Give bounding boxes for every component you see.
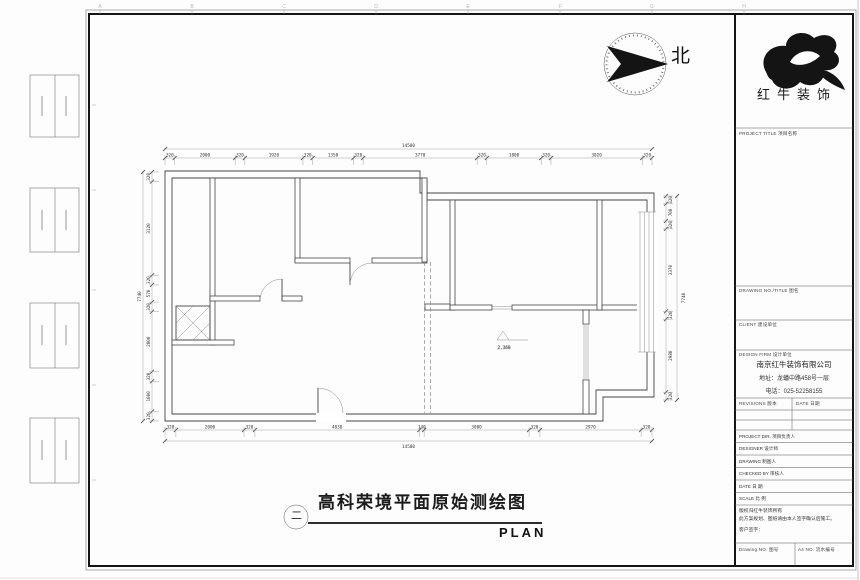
plan-subtitle: PLAN (499, 526, 546, 540)
footer-serial-no: A4 NO. 流水编号 (798, 547, 835, 552)
revisions-label: REVISIONS 版本 (739, 401, 777, 406)
row-scale: SCALE 比 例 (739, 496, 766, 501)
level-value: 2.360 (498, 345, 511, 351)
dim-label: 3770 (415, 153, 426, 159)
dim-label: 2000 (200, 153, 211, 159)
level-marker: 2.360 (497, 331, 528, 351)
dim-label: 320 (166, 153, 174, 159)
dim-label: 320 (146, 412, 152, 420)
logo-text: 红牛装饰 (737, 88, 857, 102)
revisions-date-label: DATE 日期 (796, 401, 820, 406)
dim-label: 320 (531, 425, 539, 431)
row-checked-by: CHECKED BY 审核人 (739, 471, 784, 476)
company-phone: 电话：025-52258155 (735, 389, 853, 396)
row-date: DATE 日 期 (739, 484, 763, 489)
dim-label: 320 (354, 153, 362, 159)
dim-chain-top: 3202000320192032013503203770320180032030… (163, 143, 654, 165)
door-arcs (260, 263, 512, 422)
dim-label: 2000 (205, 425, 216, 431)
dim-label: 320 (246, 425, 254, 431)
company-address: 地址：龙蟠中路458号一层 (735, 376, 853, 383)
drawing-sheet: .thin{stroke:#777;stroke-width:.6;fill:n… (0, 0, 860, 580)
dim-label: 320 (643, 425, 651, 431)
field-client: CLIENT 建设单位 (739, 322, 777, 327)
binding-marks (30, 75, 79, 483)
dim-label: 1800 (509, 153, 520, 159)
dim-label: 320 (146, 303, 152, 311)
dim-label: 320 (236, 153, 244, 159)
company-name: 南京红牛装饰有限公司 (735, 361, 853, 369)
dim-label: 320 (668, 221, 674, 229)
dim-label: 1920 (269, 153, 280, 159)
dim-label: 2970 (585, 425, 596, 431)
dim-label: 700 (668, 208, 674, 216)
note-line-3: 客户签字： (739, 528, 763, 533)
dim-chain-bottom: 320200032048301403080320297032014500 (163, 425, 654, 451)
grid-letter: C (282, 4, 286, 10)
row-project-dir: PROJECT DIR. 项目负责人 (739, 434, 795, 439)
grid-letter: E (466, 4, 470, 10)
figure-number: 二 (291, 510, 302, 522)
dim-label: 3020 (591, 153, 602, 159)
row-designer: DESIGNER 设计师 (739, 446, 778, 451)
window-band (637, 212, 657, 352)
dim-label: 320 (146, 276, 152, 284)
dim-label: 1350 (328, 153, 339, 159)
dim-label: 1000 (146, 391, 152, 402)
field-project-title: PROJECT TITLE 项目名称 (739, 131, 797, 136)
field-design-firm: DESIGN FIRM 设计单位 (739, 352, 792, 357)
dim-label: 3080 (471, 425, 482, 431)
shaft-hatch (176, 306, 210, 340)
dim-label: 14500 (402, 444, 415, 450)
field-drawing-title: DRAWING NO./TITLE 图名 (739, 288, 799, 293)
interior-walls (172, 178, 647, 414)
row-drawing: DRAWING 制图人 (739, 459, 776, 464)
dim-label: 320 (304, 153, 312, 159)
north-arrow-icon (604, 33, 668, 95)
dim-label: 570 (146, 289, 152, 297)
dim-label: 3120 (146, 223, 152, 234)
dim-chain-right: 320700320337032029803207740 (663, 194, 687, 402)
grid-letter: A (98, 4, 102, 10)
dim-label: 14500 (402, 143, 415, 149)
dim-label: 2980 (668, 350, 674, 361)
dim-label: 7740 (137, 291, 143, 302)
dim-label: 320 (668, 392, 674, 400)
dim-label: 320 (668, 311, 674, 319)
dim-label: 320 (146, 173, 152, 181)
dim-label: 320 (478, 153, 486, 159)
dim-label: 320 (167, 425, 175, 431)
north-label: 北 (671, 47, 690, 68)
dim-label: 320 (146, 372, 152, 380)
note-line-2: 此方案规划、图纸请由本人签字确认后施工。 (739, 517, 835, 522)
dim-label: 320 (668, 196, 674, 204)
note-line-1: 版权归红牛装饰所有 (739, 509, 782, 514)
dim-label: 320 (542, 153, 550, 159)
redniu-logo-icon (763, 33, 845, 90)
dim-label: 3370 (668, 265, 674, 276)
footer-drawing-no: Drawing NO. 图号 (739, 547, 779, 552)
dim-label: 7740 (681, 292, 687, 303)
grid-letter: G (650, 4, 654, 10)
grid-letter: B (190, 4, 194, 10)
dim-label: 4830 (332, 425, 343, 431)
grid-letter: D (374, 4, 378, 10)
dim-label: 2000 (146, 336, 152, 347)
dim-chain-left: 3203120320570320200032010003207740 (137, 170, 159, 423)
dashed-lines (425, 262, 431, 413)
dim-label: 320 (643, 153, 651, 159)
grid-letter: F (558, 4, 561, 10)
dim-label: 140 (418, 425, 426, 431)
grid-letter: H (742, 4, 746, 10)
page-title: 高科荣境平面原始测绘图 (318, 494, 527, 513)
